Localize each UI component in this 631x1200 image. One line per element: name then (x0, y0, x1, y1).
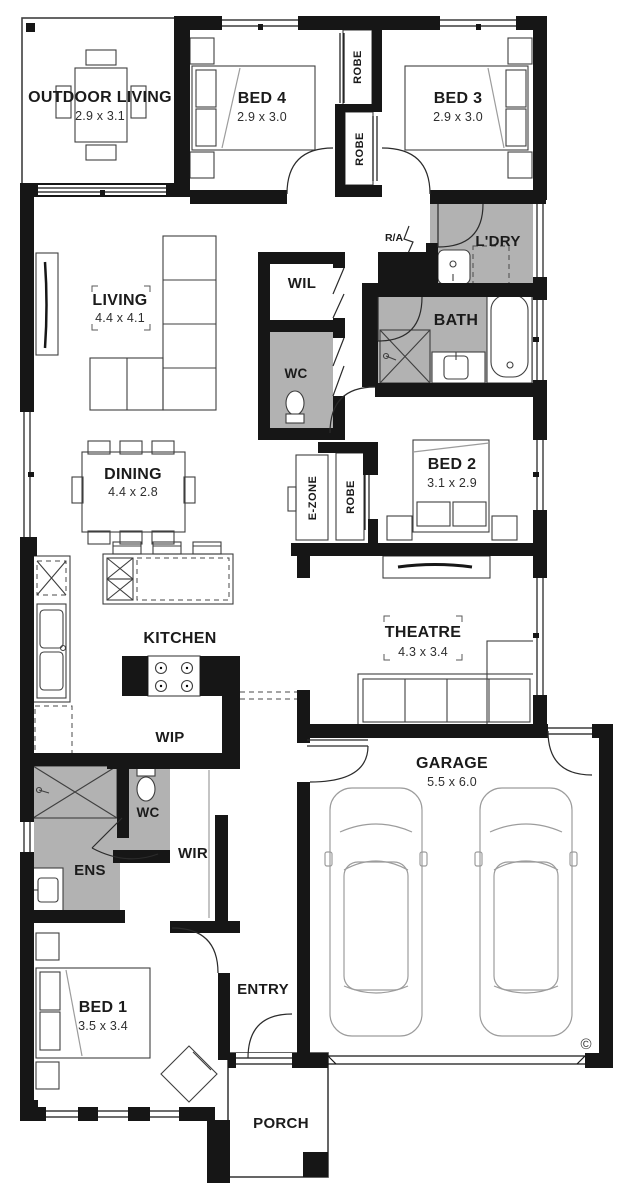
room-dims-dining: 4.4 x 2.8 (108, 485, 158, 499)
cooktop-icon (148, 656, 200, 696)
room-dims-garage: 5.5 x 6.0 (427, 775, 477, 789)
kitchen-opening-dashes (240, 692, 297, 699)
window-bed2 (533, 440, 547, 510)
tv-unit-icon (36, 253, 58, 355)
room-dims-living: 4.4 x 4.1 (95, 311, 145, 325)
floor-plan-drawing: OUTDOOR LIVING 2.9 x 3.1 BED 4 2.9 x 3.0… (0, 0, 631, 1200)
room-label-wil: WIL (288, 275, 316, 292)
window-laundry (533, 204, 547, 277)
room-label-wc: WC (285, 366, 308, 381)
toilet-icon-wc (286, 391, 304, 423)
room-label-wir: WIR (178, 845, 208, 862)
window-theatre (533, 578, 547, 695)
door-wil (333, 268, 344, 318)
room-label-porch: PORCH (253, 1115, 309, 1132)
room-label-bed2: BED 2 (428, 456, 477, 473)
copyright-mark: © (580, 1036, 591, 1053)
room-label-kitchen: KITCHEN (143, 630, 216, 647)
room-label-bath: BATH (434, 312, 478, 329)
bath-vanity-icon (432, 352, 485, 383)
room-label-robe-bed2: ROBE (345, 480, 357, 514)
windows-bed1 (46, 1107, 179, 1121)
fridge-space-icon (35, 706, 72, 754)
car-icon-right (475, 788, 577, 1036)
room-dims-outdoor-living: 2.9 x 3.1 (75, 109, 125, 123)
bed3-icon (405, 38, 532, 178)
room-label-bed4: BED 4 (238, 90, 287, 107)
room-label-robe-bed4: ROBE (352, 50, 364, 84)
laundry-trough-icon (438, 250, 470, 284)
window-bed3 (440, 16, 516, 30)
theatre-tv-icon (383, 556, 490, 578)
room-label-bed1: BED 1 (79, 999, 128, 1016)
bed4-icon (190, 38, 315, 178)
room-label-outdoor-living: OUTDOOR LIVING (28, 89, 172, 106)
room-label-laundry: L'DRY (475, 233, 520, 250)
ens-vanity-icon (33, 868, 63, 912)
room-label-living: LIVING (92, 292, 147, 309)
room-label-bed3: BED 3 (434, 90, 483, 107)
kitchen-bench-icon (33, 556, 70, 702)
island-bench-icon (103, 542, 233, 604)
room-dims-theatre: 4.3 x 3.4 (398, 645, 448, 659)
door-arc-garage-internal (307, 740, 368, 782)
door-arc-bed3 (382, 148, 430, 194)
room-label-wip: WIP (155, 729, 184, 746)
window-ens (20, 822, 34, 852)
door-arc-bed4 (287, 148, 333, 194)
window-bed4 (222, 16, 298, 30)
room-dims-bed3: 2.9 x 3.0 (433, 110, 483, 124)
entry-rug-icon (161, 1046, 217, 1102)
car-icon-left (325, 788, 427, 1036)
window-bath (533, 300, 547, 380)
garage-door-strip (328, 1056, 585, 1064)
room-dims-bed1: 3.5 x 3.4 (78, 1019, 128, 1033)
floor-plan-page: OUTDOOR LIVING 2.9 x 3.1 BED 4 2.9 x 3.0… (0, 0, 631, 1200)
room-label-theatre: THEATRE (385, 624, 461, 641)
door-arc-bed1 (172, 928, 218, 973)
door-arc-front (248, 1014, 292, 1058)
room-label-entry: ENTRY (237, 981, 289, 998)
car-icons (325, 788, 577, 1036)
window-dining (20, 412, 34, 537)
room-label-garage: GARAGE (416, 755, 488, 772)
room-dims-bed4: 2.9 x 3.0 (237, 110, 287, 124)
front-door-leaf (236, 1053, 292, 1068)
room-label-ezone: E-ZONE (307, 476, 319, 521)
window-outdoor-living (38, 185, 166, 195)
bathtub-icon (487, 289, 532, 383)
door-wc (333, 338, 344, 396)
room-label-dining: DINING (104, 466, 162, 483)
bed2-icon (387, 440, 517, 540)
room-label-ens: ENS (74, 862, 106, 879)
toilet-icon-ens-wc (137, 768, 155, 801)
room-label-ens-wc: WC (137, 805, 160, 820)
room-label-robe-bed3: ROBE (354, 132, 366, 166)
label-return-air: R/A (385, 232, 404, 244)
room-dims-bed2: 3.1 x 2.9 (427, 476, 477, 490)
garage-side-door-leaf (548, 724, 592, 738)
